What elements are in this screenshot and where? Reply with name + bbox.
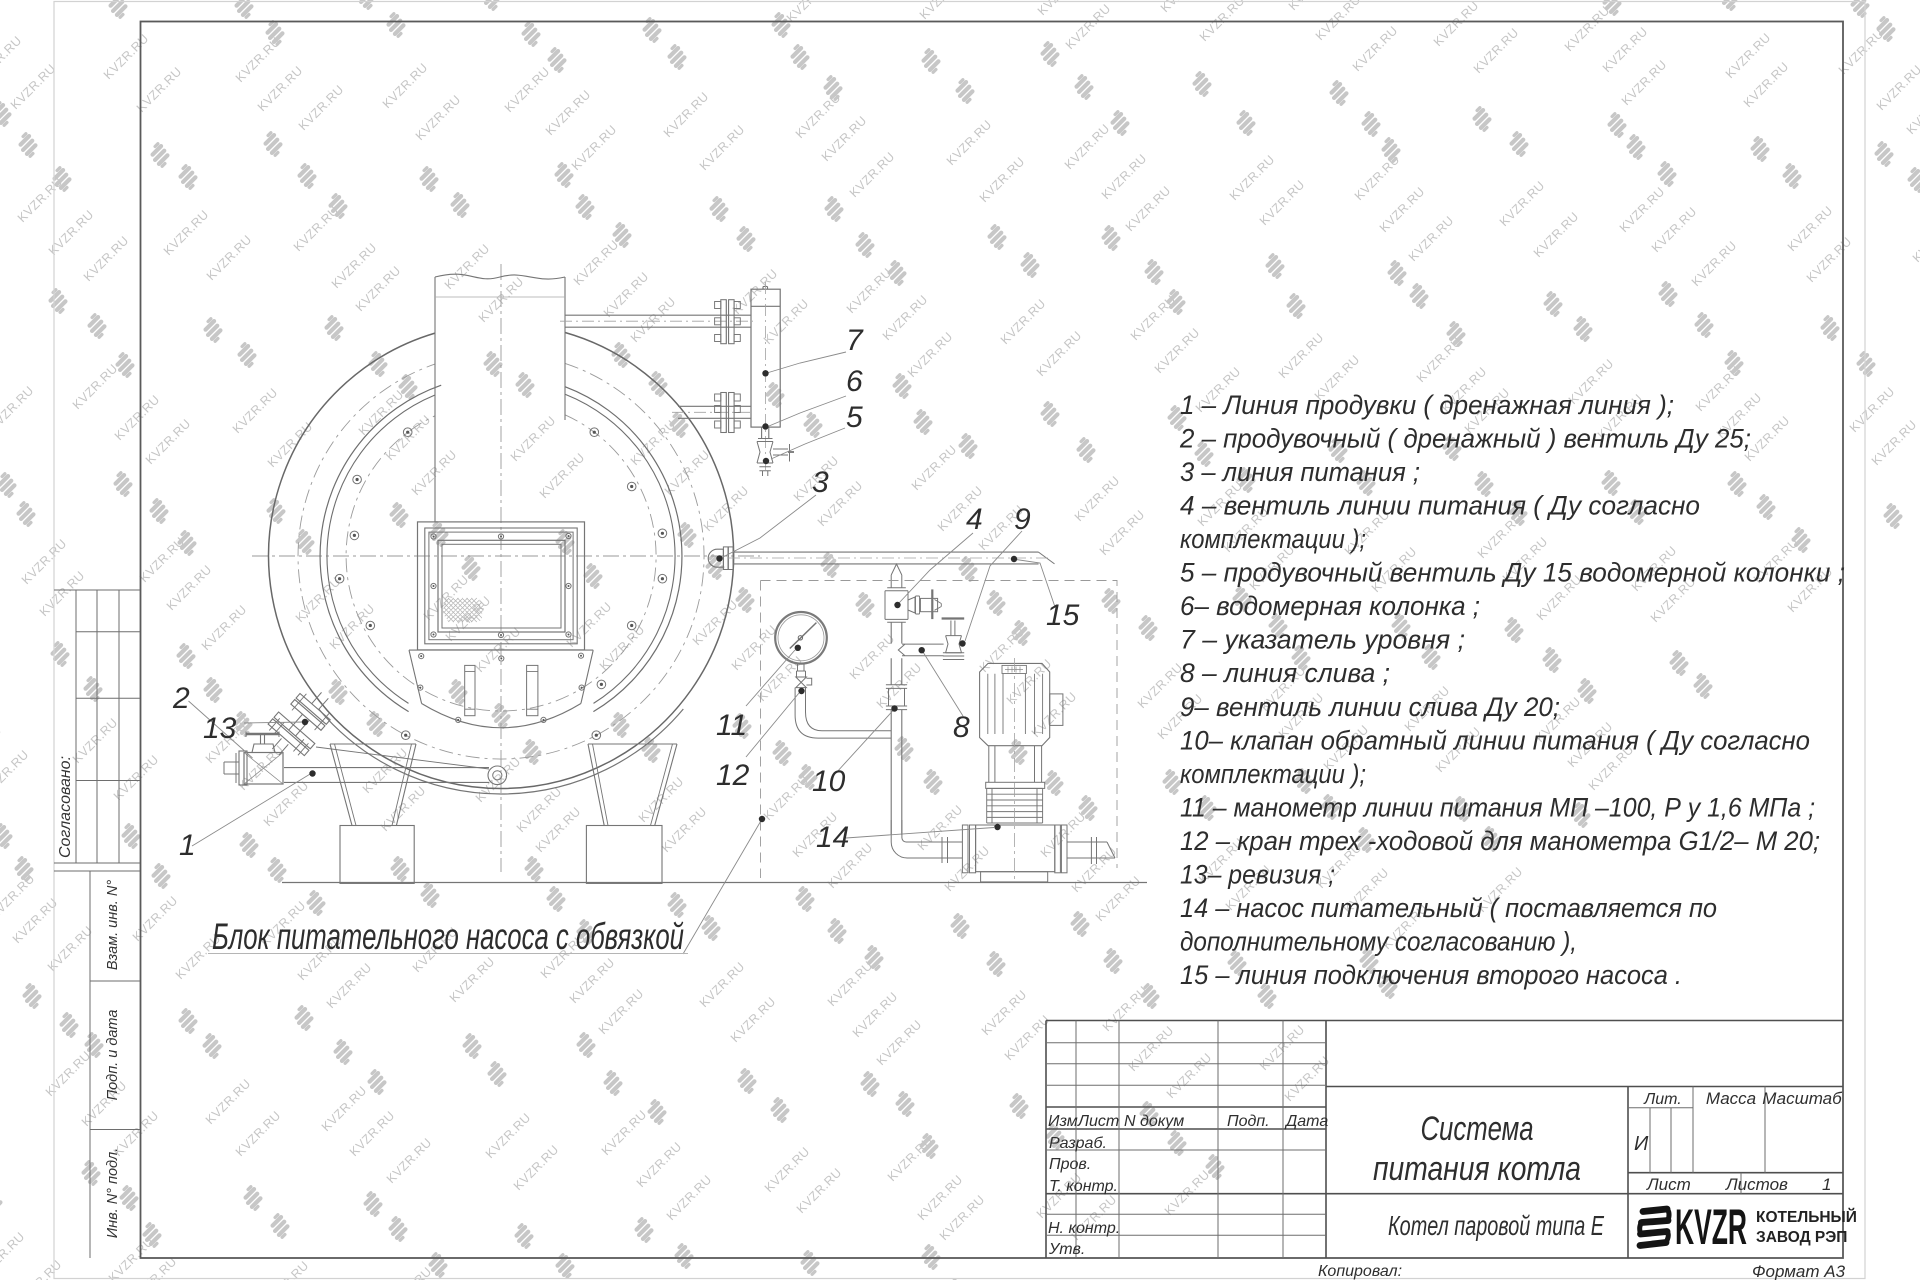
svg-text:Дата: Дата [1284, 1113, 1328, 1130]
svg-text:Подп. и дата: Подп. и дата [105, 1010, 121, 1101]
svg-text:Система: Система [1421, 1110, 1534, 1148]
svg-text:Т. контр.: Т. контр. [1049, 1178, 1118, 1195]
svg-text:3: 3 [812, 466, 829, 499]
svg-text:8 – линия слива ;: 8 – линия слива ; [1180, 658, 1390, 688]
svg-text:9– вентиль линии слива Ду 20;: 9– вентиль линии слива Ду 20; [1180, 692, 1560, 722]
svg-text:14: 14 [816, 821, 849, 854]
svg-text:13– ревизия ;: 13– ревизия ; [1180, 859, 1335, 889]
svg-text:КОТЕЛЬНЫЙ: КОТЕЛЬНЫЙ [1756, 1208, 1857, 1226]
svg-text:Листов: Листов [1725, 1175, 1788, 1194]
svg-text:2: 2 [172, 682, 190, 715]
svg-text:Масса: Масса [1706, 1089, 1756, 1108]
svg-text:Взам. инв. N°: Взам. инв. N° [105, 880, 121, 970]
svg-text:11: 11 [716, 709, 747, 742]
svg-text:Копировал:: Копировал: [1318, 1263, 1402, 1280]
svg-text:комплектации );: комплектации ); [1180, 524, 1366, 554]
svg-text:питания котла: питания котла [1373, 1150, 1581, 1188]
svg-text:И: И [1634, 1133, 1649, 1155]
svg-text:8: 8 [953, 711, 970, 744]
svg-text:5 – продувочный вентиль Ду 15: 5 – продувочный вентиль Ду 15 водомерной… [1180, 558, 1845, 588]
svg-text:Лит.: Лит. [1643, 1091, 1681, 1108]
svg-text:Лист: Лист [1646, 1175, 1691, 1194]
svg-text:2 – продувочный ( дренажный ): 2 – продувочный ( дренажный ) вентиль Ду… [1179, 424, 1751, 454]
svg-text:Согласовано:: Согласовано: [57, 756, 74, 858]
svg-text:1 – Линия продувки ( дренажна: 1 – Линия продувки ( дренажная линия ); [1180, 390, 1674, 420]
svg-text:Разраб.: Разраб. [1049, 1135, 1107, 1152]
svg-text:13: 13 [203, 712, 237, 745]
svg-text:10– клапан обратный линии пит: 10– клапан обратный линии питания ( Ду с… [1180, 725, 1810, 755]
svg-text:10: 10 [812, 765, 846, 798]
svg-text:Изм: Изм [1048, 1113, 1078, 1130]
svg-text:1: 1 [179, 829, 196, 862]
svg-text:5: 5 [846, 401, 863, 434]
svg-text:ЗАВОД РЭП: ЗАВОД РЭП [1756, 1229, 1847, 1246]
svg-text:11 – манометр линии питания М: 11 – манометр линии питания МП –100, Р у… [1180, 792, 1815, 822]
svg-text:Масштаб: Масштаб [1762, 1089, 1843, 1108]
svg-text:9: 9 [1014, 503, 1031, 536]
svg-text:15 – линия подключения второг: 15 – линия подключения второго насоса . [1180, 960, 1682, 990]
svg-text:Подп.: Подп. [1227, 1113, 1270, 1130]
svg-text:6– водомерная колонка ;: 6– водомерная колонка ; [1180, 591, 1480, 621]
svg-text:6: 6 [846, 365, 863, 398]
svg-text:4: 4 [966, 503, 983, 536]
svg-text:14 – насос питательный ( пос: 14 – насос питательный ( поставляется по [1180, 893, 1717, 923]
svg-text:12 – кран трех -ходовой для м: 12 – кран трех -ходовой для манометра G1… [1180, 826, 1820, 856]
svg-text:Пров.: Пров. [1049, 1156, 1091, 1173]
svg-text:Утв.: Утв. [1048, 1241, 1085, 1258]
svg-text:Котел паровой типа Е: Котел паровой типа Е [1388, 1210, 1604, 1241]
svg-text:12: 12 [716, 759, 750, 792]
svg-text:7: 7 [846, 324, 864, 357]
svg-text:1: 1 [1822, 1175, 1831, 1194]
svg-text:N докум: N докум [1124, 1113, 1184, 1130]
svg-text:7 – указатель уровня ;: 7 – указатель уровня ; [1180, 625, 1465, 655]
svg-text:KVZR: KVZR [1675, 1199, 1747, 1255]
svg-text:4 – вентиль линии питания (: 4 – вентиль линии питания ( Ду согласно [1180, 491, 1700, 521]
svg-text:Н. контр.: Н. контр. [1048, 1220, 1120, 1237]
svg-text:Лист: Лист [1077, 1113, 1119, 1130]
svg-text:Блок питательного насоса с обв: Блок питательного насоса с обвязкой [212, 916, 684, 957]
svg-text:15: 15 [1046, 599, 1080, 632]
svg-text:Инв. N° подл.: Инв. N° подл. [105, 1148, 121, 1239]
svg-text:3 – линия питания ;: 3 – линия питания ; [1180, 457, 1420, 487]
svg-text:комплектации );: комплектации ); [1180, 759, 1366, 789]
svg-text:дополнительному согласованию ): дополнительному согласованию ), [1180, 927, 1577, 957]
svg-text:Формат А3: Формат А3 [1752, 1262, 1846, 1280]
